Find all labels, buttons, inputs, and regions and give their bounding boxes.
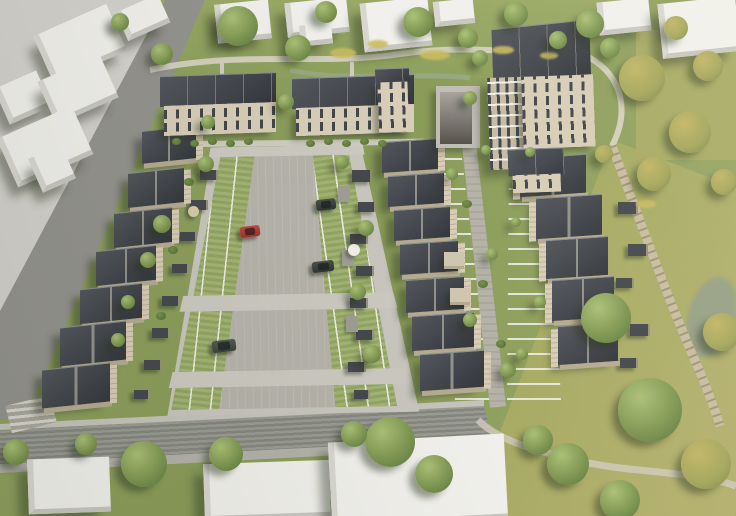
flower-patch — [420, 50, 450, 60]
tree-canopy — [600, 38, 620, 58]
hedge-bush — [168, 246, 178, 254]
garden-shed — [134, 390, 150, 399]
garden-shed — [358, 202, 376, 212]
tree-canopy — [595, 145, 613, 163]
hedge-bush — [306, 140, 315, 147]
annex-facade — [512, 174, 561, 194]
tree-canopy — [218, 6, 258, 46]
hedge-bush — [378, 140, 387, 147]
hedge-bush — [324, 138, 333, 145]
tree-canopy — [681, 439, 731, 489]
garden-patio — [346, 316, 358, 332]
semi-detached-house — [128, 167, 184, 208]
tree-canopy — [358, 220, 374, 236]
tree-canopy — [534, 296, 546, 308]
garden-shed — [162, 296, 180, 306]
tree-canopy — [365, 417, 415, 467]
tree-canopy — [523, 425, 553, 455]
garden-shed — [172, 264, 189, 273]
tree-canopy — [472, 50, 488, 66]
patio-umbrella — [188, 206, 199, 217]
flower-patch — [368, 40, 388, 48]
apartment-building — [485, 16, 606, 190]
row-house — [546, 236, 608, 279]
tree-canopy — [315, 1, 337, 23]
tree-canopy — [547, 443, 589, 485]
hedge-bush — [172, 138, 181, 145]
flower-patch — [636, 200, 656, 208]
garden-shed — [628, 244, 648, 256]
hedge-bush — [226, 140, 235, 147]
flower-patch — [540, 52, 558, 59]
tree-canopy — [669, 111, 711, 153]
tree-canopy — [446, 168, 458, 180]
tree-canopy — [111, 13, 129, 31]
tree-canopy — [140, 252, 156, 268]
tree-canopy — [151, 43, 173, 65]
tree-canopy — [637, 157, 671, 191]
hedge-bush — [190, 140, 199, 147]
tree-canopy — [3, 439, 29, 465]
tree-canopy — [463, 313, 477, 327]
aerial-rendering-canvas — [0, 0, 736, 516]
row-house — [420, 350, 484, 391]
context-building — [433, 0, 475, 27]
tree-canopy — [516, 348, 528, 360]
tree-canopy — [500, 362, 516, 378]
tree-canopy — [415, 455, 453, 493]
tree-canopy — [486, 248, 498, 260]
tree-canopy — [504, 2, 528, 26]
tree-canopy — [201, 115, 215, 129]
tree-canopy — [525, 147, 535, 157]
garage — [450, 288, 470, 305]
garden-shed — [352, 170, 372, 182]
hedge-bush — [360, 138, 369, 145]
tree-canopy — [198, 156, 214, 172]
tree-canopy — [153, 215, 171, 233]
row-house — [388, 172, 444, 207]
tree-canopy — [350, 284, 366, 300]
tree-canopy — [75, 433, 97, 455]
garden-shed — [354, 390, 370, 399]
tree-canopy — [511, 217, 521, 227]
row-house — [394, 206, 450, 241]
tree-canopy — [664, 16, 688, 40]
tree-canopy — [600, 480, 640, 516]
context-building — [27, 457, 111, 515]
garden-shed — [620, 358, 638, 368]
tree-canopy — [581, 293, 631, 343]
garden-shed — [356, 330, 374, 340]
tree-canopy — [703, 313, 736, 351]
hedge-bush — [478, 280, 488, 288]
tree-canopy — [693, 51, 723, 81]
garden-shed — [630, 324, 650, 336]
tree-canopy — [285, 35, 311, 61]
hedge-bush — [496, 340, 506, 348]
row-house — [536, 194, 602, 240]
tree-canopy — [619, 55, 665, 101]
semi-detached-house — [42, 362, 110, 408]
tree-canopy — [481, 145, 491, 155]
tree-canopy — [458, 28, 478, 48]
hedge-bush — [156, 312, 166, 320]
hedge-bush — [184, 178, 194, 186]
townhouse-row-a — [160, 72, 280, 140]
tree-canopy — [363, 345, 381, 363]
tree-canopy — [403, 7, 433, 37]
garage — [444, 252, 464, 269]
tree-canopy — [549, 31, 567, 49]
tree-canopy — [121, 441, 167, 487]
tree-canopy — [576, 10, 604, 38]
tower-facade — [377, 81, 409, 132]
hedge-bush — [342, 140, 351, 147]
townhouse-end-tower — [375, 67, 411, 132]
row-house — [382, 138, 438, 173]
tree-canopy — [111, 333, 125, 347]
tree-canopy — [711, 169, 736, 195]
flower-patch — [492, 46, 514, 54]
tree-canopy — [463, 91, 477, 105]
hedge-bush — [244, 138, 253, 145]
garden-shed — [180, 232, 197, 241]
patio-umbrella — [348, 244, 360, 256]
apartment-south-facade — [521, 74, 595, 148]
garden-shed — [356, 266, 374, 276]
garden-shed — [348, 362, 366, 372]
garden-shed — [618, 202, 638, 214]
tree-canopy — [209, 437, 243, 471]
context-building — [596, 0, 651, 36]
annex-roof — [508, 147, 565, 176]
tree-canopy — [121, 295, 135, 309]
hedge-bush — [462, 200, 472, 208]
tree-canopy — [278, 94, 294, 110]
garden-shed — [152, 328, 170, 338]
tree-canopy — [341, 421, 367, 447]
tree-canopy — [618, 378, 682, 442]
tree-canopy — [335, 155, 349, 169]
garden-patio — [338, 186, 350, 202]
garden-shed — [144, 360, 162, 370]
townhouse-facade — [164, 102, 276, 136]
garden-shed — [616, 278, 634, 288]
flower-patch — [330, 48, 356, 58]
hedge-bush — [208, 138, 217, 145]
